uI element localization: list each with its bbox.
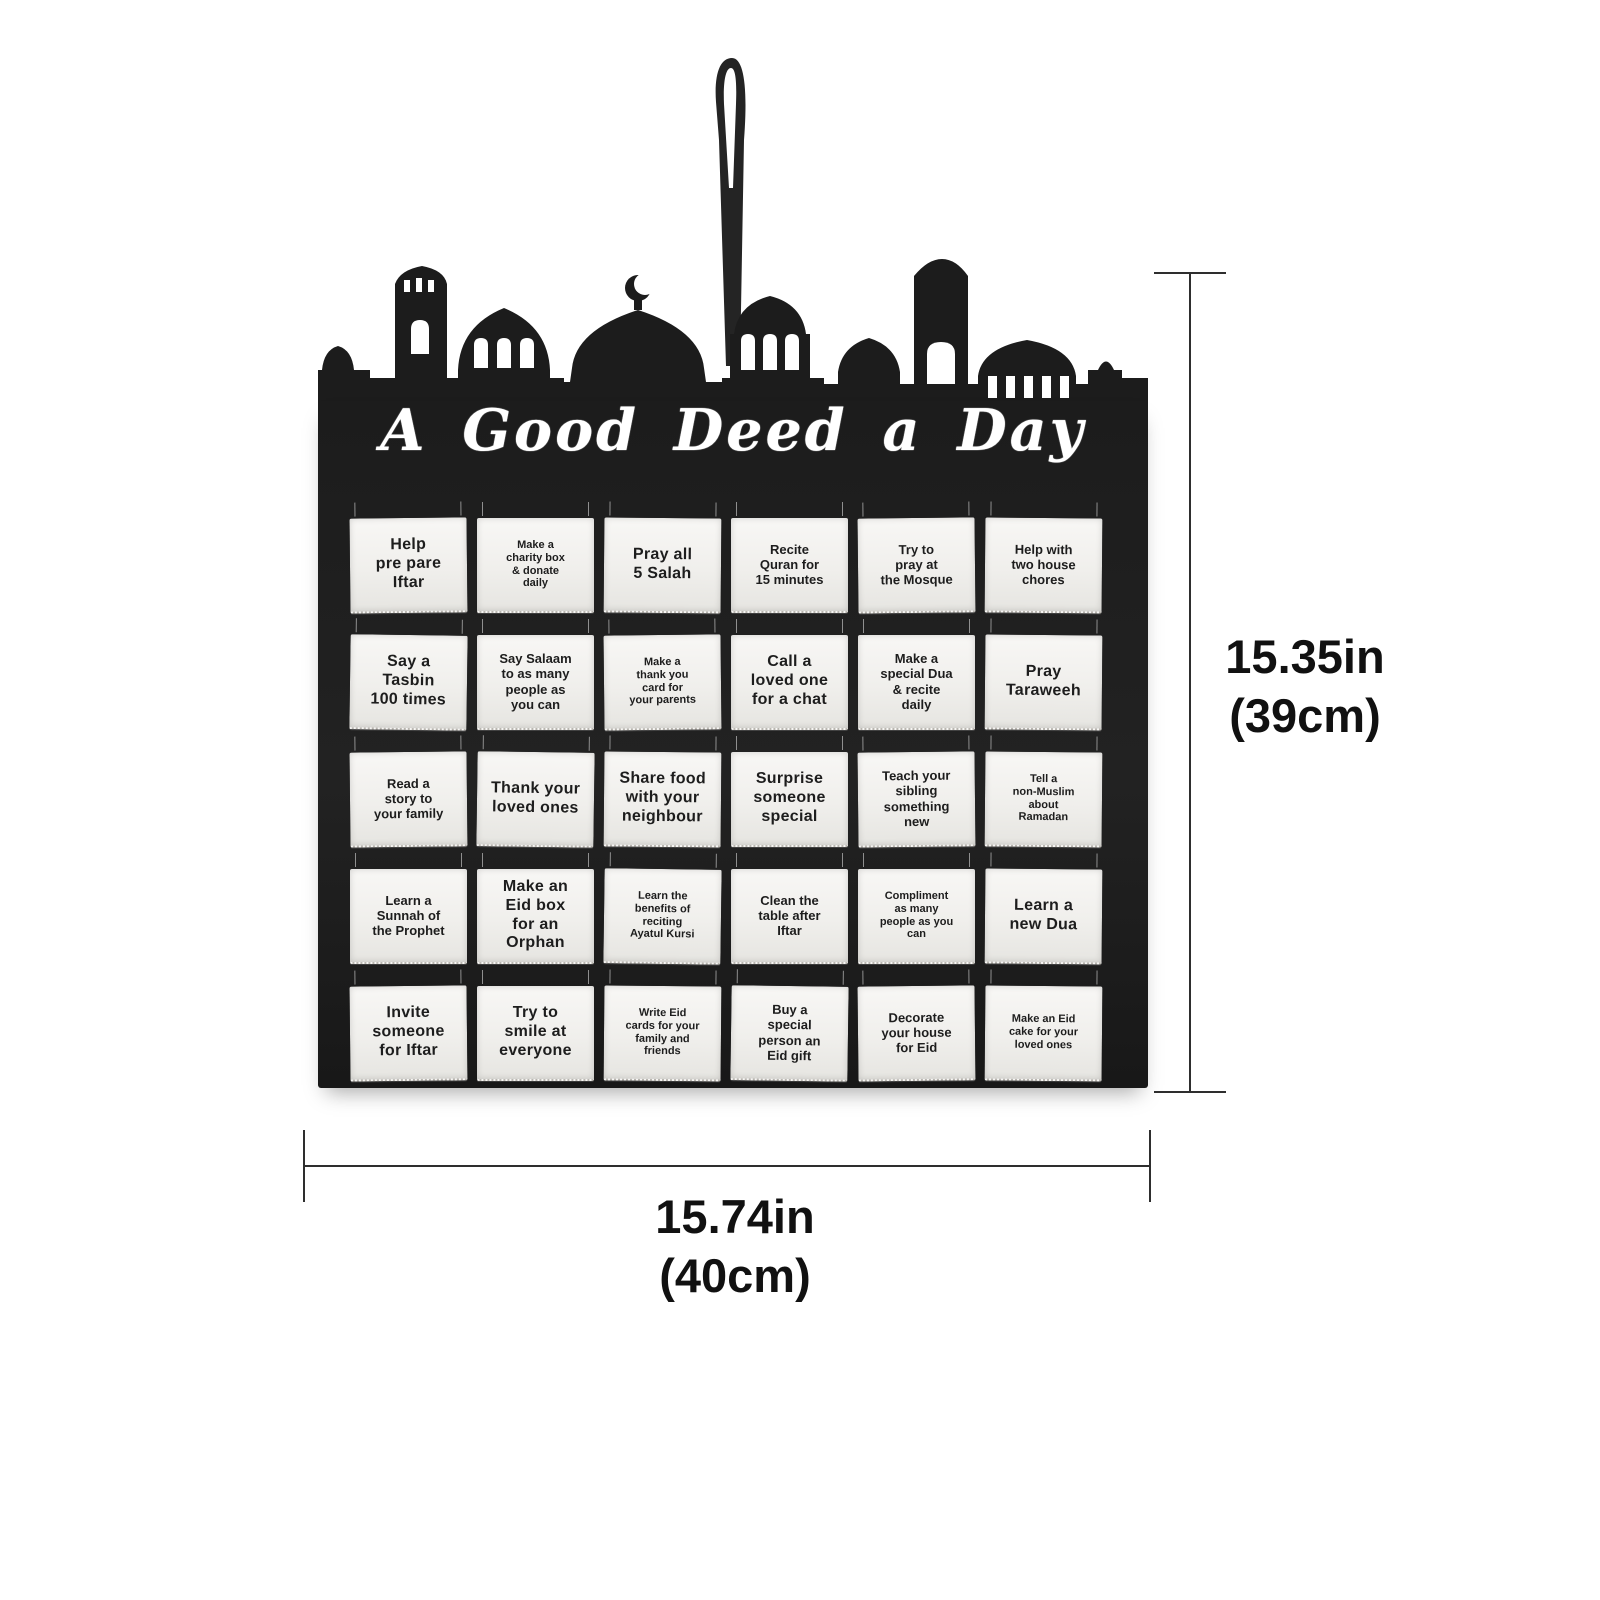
calendar-title: A Good Deed a Day — [318, 402, 1148, 459]
width-dimension-cap-left — [303, 1130, 305, 1202]
pocket-label: Try to smile at everyone — [477, 986, 594, 1081]
pocket-label: Help pre pare Iftar — [350, 517, 468, 613]
pocket-label: Make an Eid box for an Orphan — [477, 869, 594, 964]
pocket-label: Share food with your neighbour — [604, 751, 722, 847]
pocket-label: Call a loved one for a chat — [731, 635, 848, 730]
pocket-label: Write Eid cards for your family and frie… — [604, 985, 722, 1081]
width-dimension-line — [303, 1165, 1151, 1167]
pocket-label: Pray all 5 Salah — [604, 517, 722, 613]
pocket-label: Thank your loved ones — [476, 751, 594, 848]
pocket-label: Decorate your house for Eid — [858, 985, 976, 1081]
pocket-label: Say a Tasbin 100 times — [349, 634, 467, 731]
mosque-skyline-icon — [318, 250, 1148, 402]
pocket-label: Help with two house chores — [985, 517, 1103, 613]
pocket-label: Teach your sibling something new — [858, 751, 976, 847]
pocket-label: Make a special Dua & recite daily — [858, 635, 975, 730]
pocket-label: Compliment as many people as you can — [858, 869, 975, 964]
pocket-label: Make an Eid cake for your loved ones — [985, 985, 1103, 1081]
width-inches: 15.74in — [535, 1188, 935, 1247]
pocket-label: Try to pray at the Mosque — [858, 517, 976, 613]
good-deed-calendar: A Good Deed a Day Help pre pare IftarMak… — [318, 250, 1148, 1088]
pocket-label: Learn a Sunnah of the Prophet — [350, 869, 467, 964]
pocket-label: Say Salaam to as many people as you can — [477, 635, 594, 730]
width-centimeters: (40cm) — [535, 1247, 935, 1306]
width-dimension-label: 15.74in (40cm) — [535, 1188, 935, 1306]
height-dimension-cap-bottom — [1154, 1091, 1226, 1093]
pocket-label: Learn the benefits of reciting Ayatul Ku… — [603, 868, 721, 965]
height-dimension-label: 15.35in (39cm) — [1200, 628, 1410, 746]
pocket-label: Make a thank you card for your parents — [604, 634, 722, 730]
product-photo: A Good Deed a Day Help pre pare IftarMak… — [0, 0, 1600, 1600]
pocket-label: Clean the table after Iftar — [731, 869, 848, 964]
pocket-label: Read a story to your family — [350, 751, 468, 847]
height-centimeters: (39cm) — [1200, 687, 1410, 746]
pocket-label: Invite someone for Iftar — [350, 985, 468, 1081]
pocket-label: Buy a special person an Eid gift — [730, 985, 848, 1082]
width-dimension-cap-right — [1149, 1130, 1151, 1202]
height-dimension-line — [1189, 272, 1191, 1093]
pocket-label: Pray Taraweeh — [985, 634, 1103, 730]
pocket-label: Make a charity box & donate daily — [477, 518, 594, 613]
pocket-grid: Help pre pare IftarMake a charity box & … — [350, 518, 1102, 1081]
pocket-label: Learn a new Dua — [985, 868, 1103, 964]
height-inches: 15.35in — [1200, 628, 1410, 687]
crescent-moon-icon — [625, 273, 656, 310]
height-dimension-cap-top — [1154, 272, 1226, 274]
pocket-label: Surprise someone special — [731, 752, 848, 847]
pocket-label: Tell a non-Muslim about Ramadan — [985, 751, 1103, 847]
pocket-label: Recite Quran for 15 minutes — [731, 518, 848, 613]
